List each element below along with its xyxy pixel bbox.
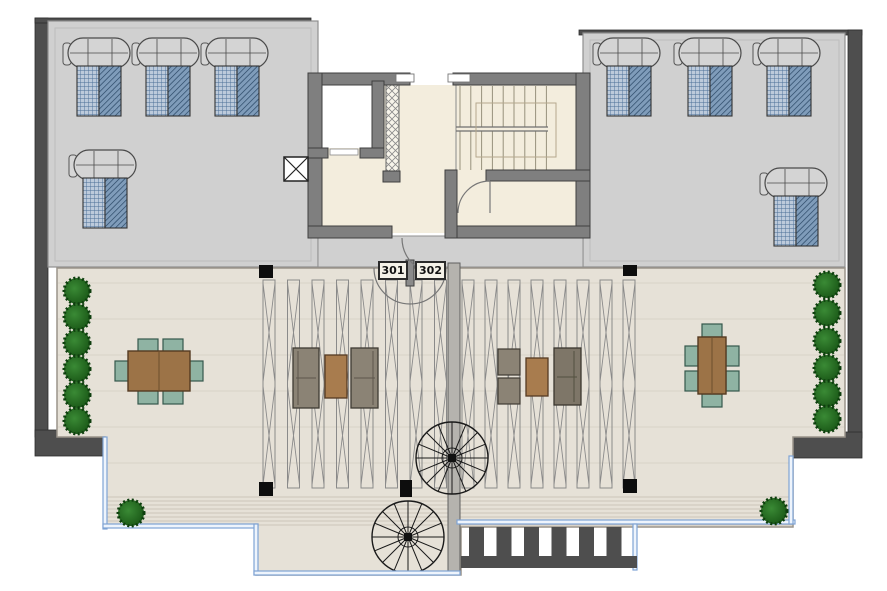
shrub xyxy=(64,330,90,356)
pergola-beam xyxy=(469,527,484,557)
coffee-table-302 xyxy=(526,358,548,396)
shrub xyxy=(814,328,840,354)
roof-door-panel-right xyxy=(448,74,470,82)
shrub xyxy=(814,272,840,298)
lower-pergola-beams xyxy=(461,527,637,568)
shrub xyxy=(64,278,90,304)
pergola-beam xyxy=(579,527,594,557)
shrub xyxy=(64,382,90,408)
shrub xyxy=(814,381,840,407)
shrub xyxy=(64,356,90,382)
pergola-beam xyxy=(552,527,567,557)
elevator-shaft xyxy=(320,85,372,148)
duct-shaft xyxy=(386,85,399,171)
shrub xyxy=(814,406,840,432)
pergola-beam xyxy=(607,527,622,557)
unit-label-302: 302 xyxy=(415,261,446,280)
shrub xyxy=(118,500,144,526)
coffee-table-301 xyxy=(325,355,347,398)
floor-plan-drawing xyxy=(0,0,887,591)
shrub xyxy=(814,300,840,326)
shrub xyxy=(761,498,787,524)
spiral-staircase xyxy=(372,501,444,573)
terrace-divider-wall xyxy=(448,263,460,575)
elevator-door xyxy=(330,149,358,155)
spiral-staircase xyxy=(416,422,488,494)
roof-hatch-marker xyxy=(284,157,308,181)
roof-door-panel-left xyxy=(396,74,414,82)
shrub xyxy=(64,304,90,330)
shrub xyxy=(64,408,90,434)
shrub xyxy=(814,355,840,381)
unit-label-301: 301 xyxy=(378,261,408,280)
roof-deck-strip xyxy=(318,236,583,267)
pergola-beam xyxy=(497,527,512,557)
roof-terrace-floor-plan: 301 302 xyxy=(0,0,887,591)
pergola-beam xyxy=(524,527,539,557)
